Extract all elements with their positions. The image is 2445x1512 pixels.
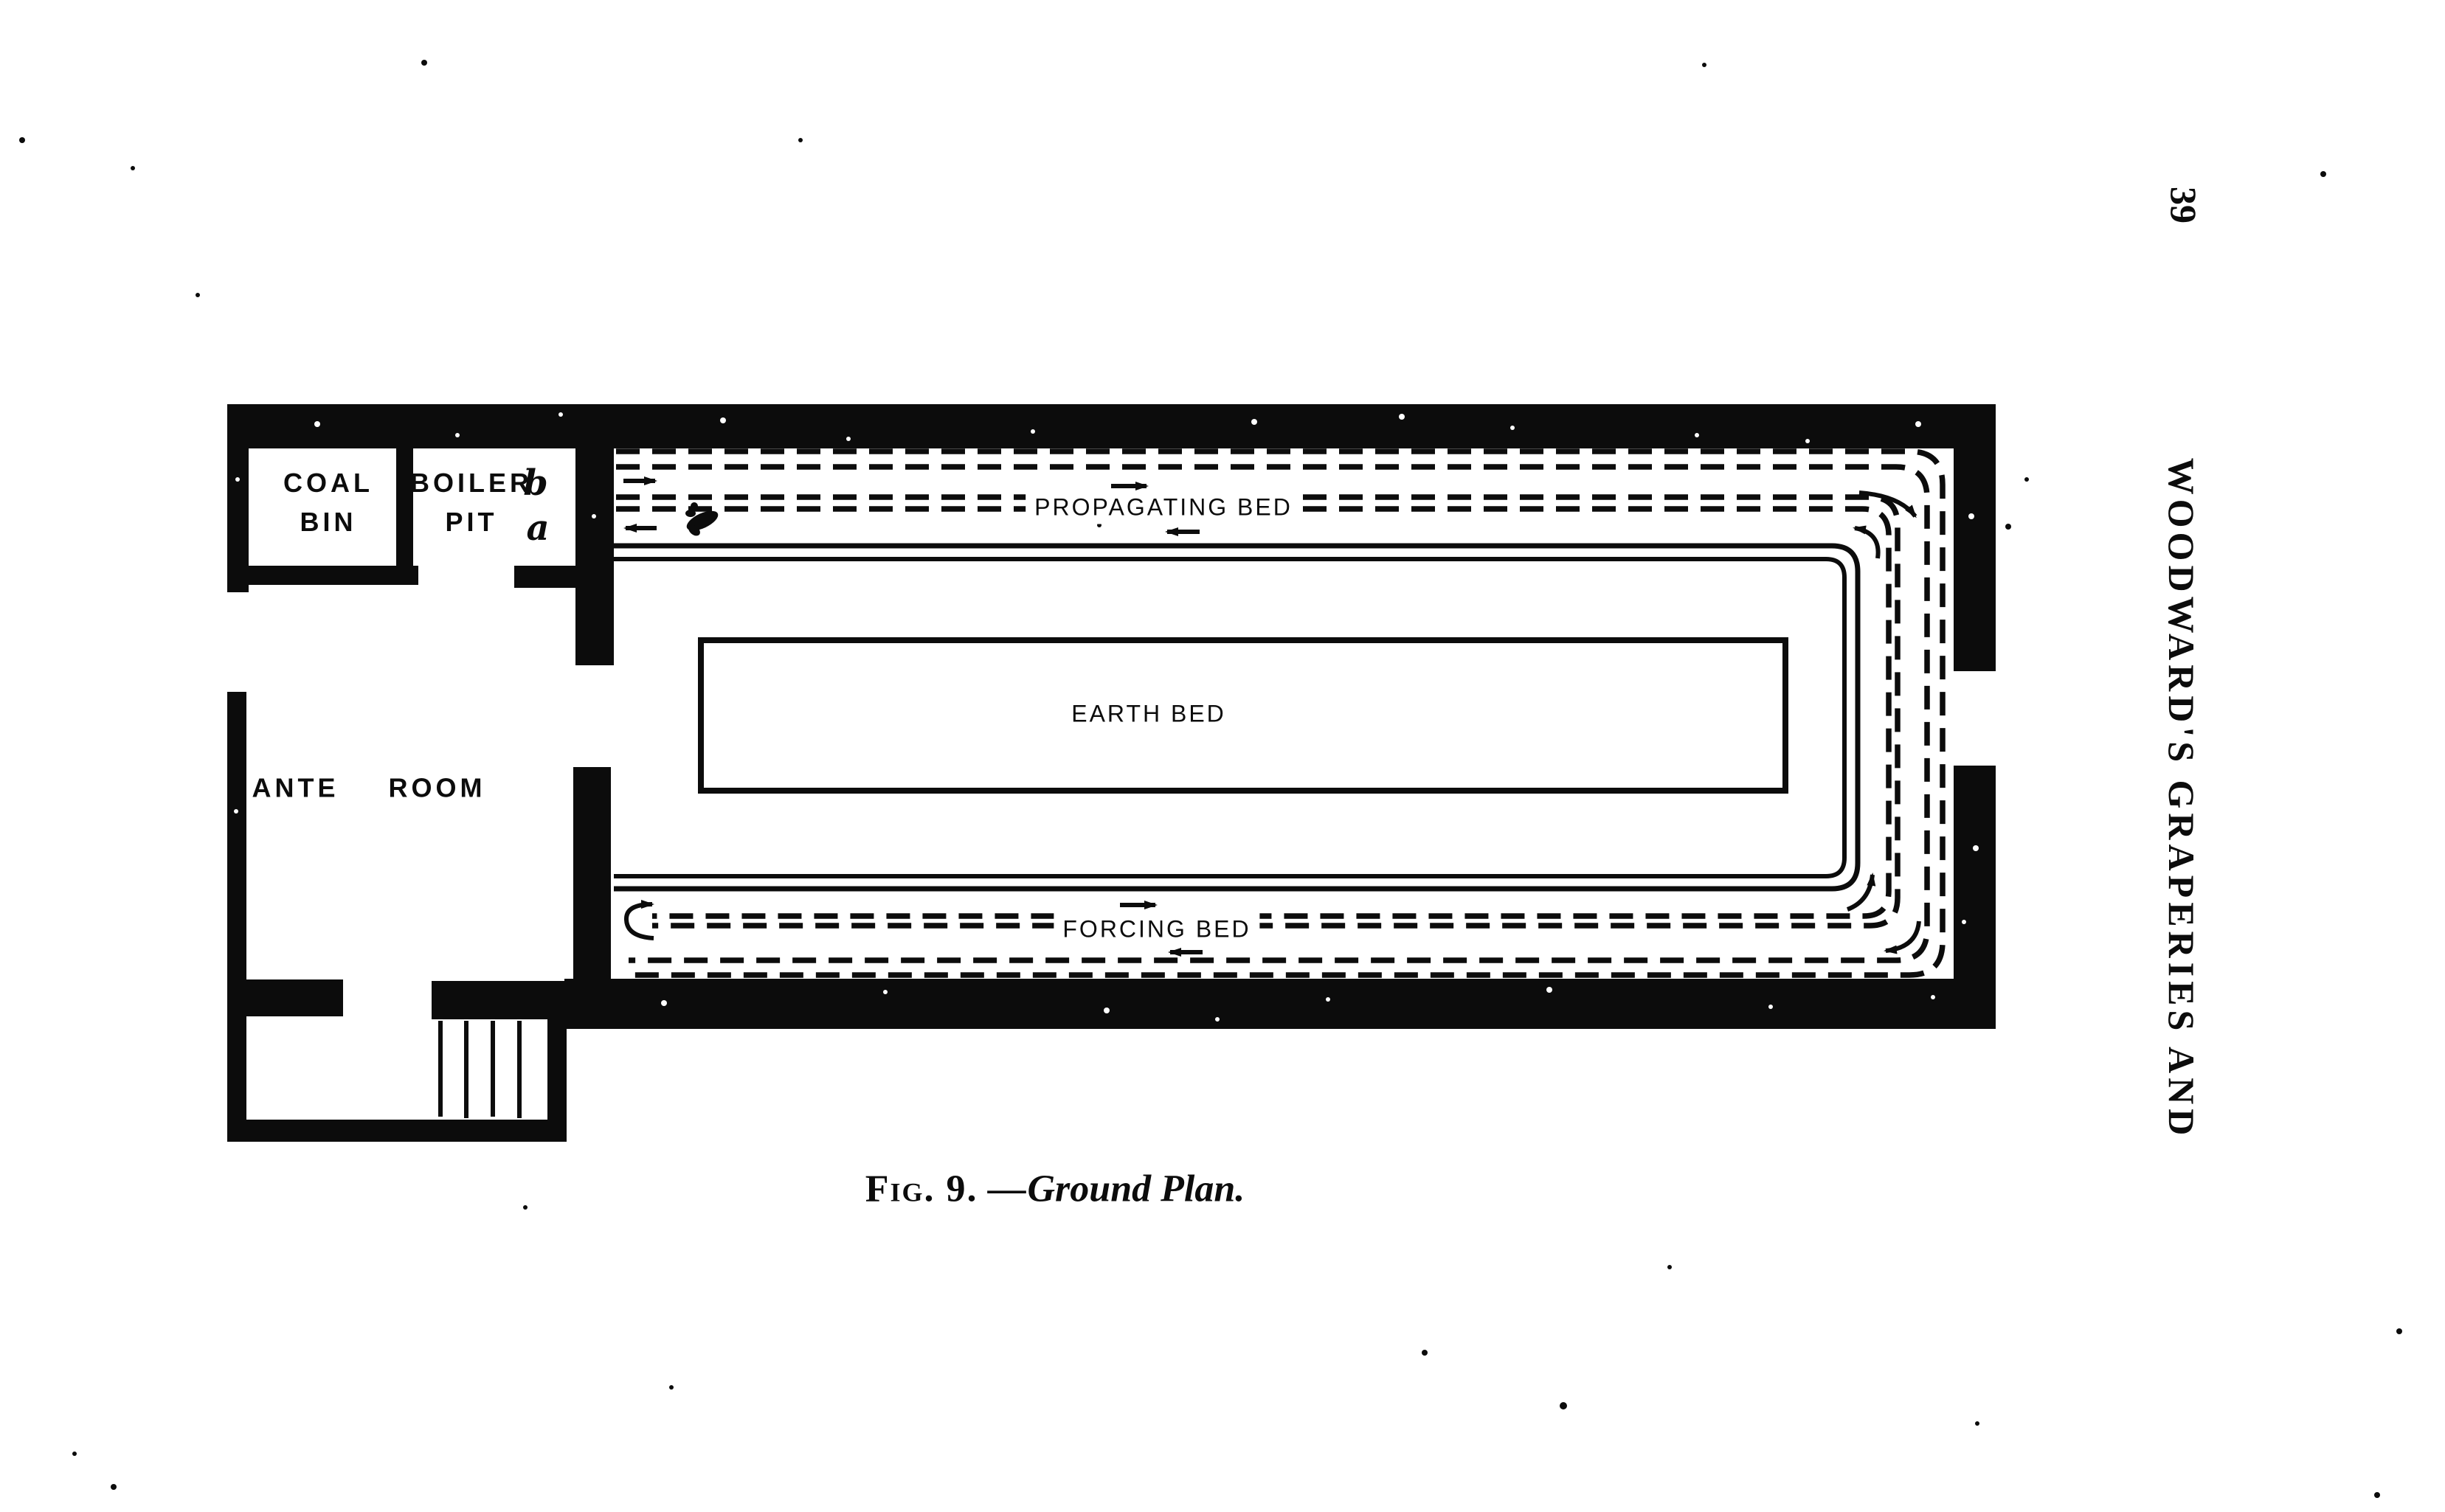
wall-ante-interior-a: [246, 979, 343, 1016]
page-number: 39: [2162, 187, 2205, 223]
wall-ante-bottom: [227, 1120, 567, 1142]
figure-caption: Fig. 9. —Ground Plan.: [865, 1168, 1245, 1211]
earth-bed-label: EARTH BED: [1062, 698, 1235, 731]
running-header: WOODWARD'S GRAPERIES AND: [2160, 458, 2203, 1140]
wall-left-coalblock: [227, 404, 249, 592]
flow-arrows: [623, 481, 1919, 952]
figure-caption-separator: —: [988, 1168, 1028, 1210]
earth-bed-outline: [701, 640, 1785, 791]
wall-main-left-lower: [573, 767, 611, 981]
scanned-book-page: COAL BIN BOILER PIT b a ANTE ROOM PROPAG…: [0, 0, 2445, 1512]
figure-caption-number: Fig. 9.: [865, 1168, 978, 1210]
coal-bin-label: COAL BIN: [283, 463, 373, 541]
flue-loop-3: [616, 497, 1898, 926]
wall-right-upper: [1954, 404, 1996, 671]
arrow-curve-topright-left: [1855, 528, 1878, 558]
boiler-pit-label: BOILER PIT: [410, 463, 533, 541]
wall-stairwell-right: [547, 1019, 567, 1123]
flue-loop-4: [616, 509, 1889, 916]
return-pipe-marker-a: a: [526, 507, 549, 549]
wall-ante-left: [227, 692, 246, 1142]
propagating-bed-label: PROPAGATING BED: [1026, 491, 1301, 524]
ground-plan-drawing: [0, 0, 2445, 1512]
stair-treads: [440, 1021, 519, 1118]
wall-stairwell-top: [432, 981, 564, 1019]
flue-loop-1: [616, 451, 1943, 975]
boiler-pit-label-line1: BOILER: [410, 463, 533, 502]
arrow-curve-bottomright-left: [1886, 921, 1919, 951]
arrow-uturn-west-bottom: [626, 904, 654, 938]
boiler-pit-label-line2: PIT: [410, 502, 533, 541]
coal-bin-label-line2: BIN: [283, 502, 373, 541]
figure-caption-title: Ground Plan.: [1028, 1168, 1245, 1210]
forcing-bed-label: FORCING BED: [1054, 913, 1259, 946]
ground-plan-figure: COAL BIN BOILER PIT b a ANTE ROOM PROPAG…: [0, 0, 2445, 1512]
flue-lines: [616, 451, 1943, 975]
wall-top: [227, 404, 1996, 448]
wall-main-left-upper: [575, 443, 614, 665]
wall-bottom-main: [564, 979, 1996, 1029]
ante-room-label: ANTE ROOM: [252, 769, 486, 808]
flow-pipe-marker-b: b: [523, 462, 548, 504]
wall-coalbin-bottom: [227, 566, 418, 585]
bed-boundary: [614, 546, 1858, 889]
coal-bin-label-line1: COAL: [283, 463, 373, 502]
